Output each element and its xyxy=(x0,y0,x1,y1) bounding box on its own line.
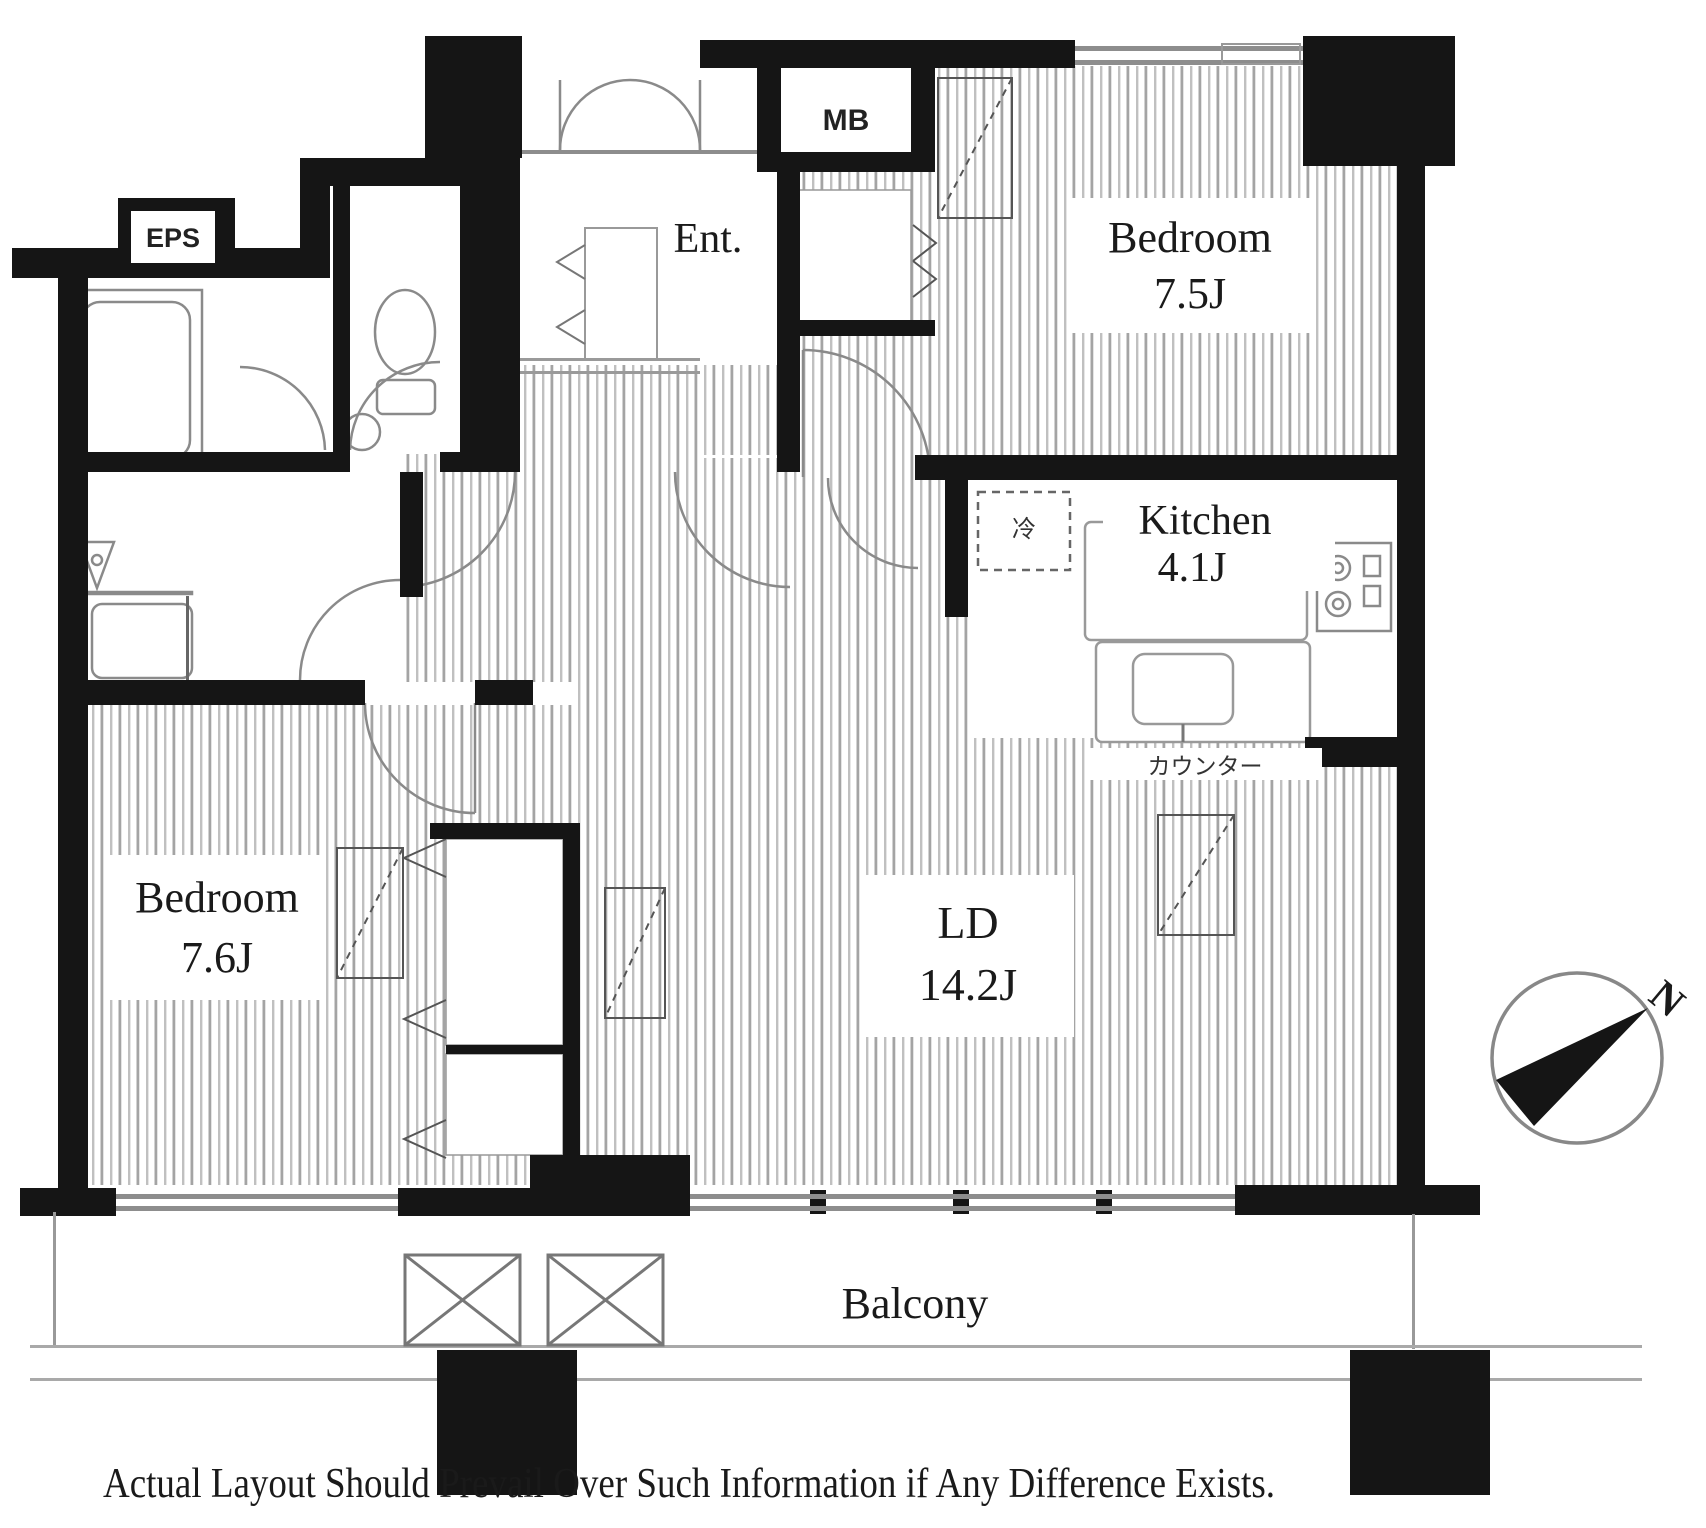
refrigerator-label: 冷 xyxy=(1012,516,1036,543)
bedroom-left-size: 7.6J xyxy=(181,933,253,982)
bedroom-top-name: Bedroom xyxy=(1108,213,1272,262)
balcony-label: Balcony xyxy=(842,1279,989,1328)
eps-label: EPS xyxy=(146,223,200,253)
kitchen-name: Kitchen xyxy=(1139,498,1272,544)
balcony-area xyxy=(30,1212,1642,1495)
floor-plan-drawing: 冷 xyxy=(0,0,1706,1528)
balcony-x-box xyxy=(405,1255,520,1345)
balcony-x-box xyxy=(548,1255,663,1345)
kitchen-size: 4.1J xyxy=(1158,545,1227,591)
ld-name: LD xyxy=(937,897,998,948)
compass: N xyxy=(1492,972,1693,1143)
bedroom-top-size: 7.5J xyxy=(1154,269,1226,318)
structural-pillar xyxy=(1350,1350,1490,1495)
entrance-label: Ent. xyxy=(674,216,743,262)
ld-size: 14.2J xyxy=(919,959,1017,1010)
bedroom-left-name: Bedroom xyxy=(135,873,299,922)
floor-plan-page: 冷 xyxy=(0,0,1706,1528)
disclaimer-text: Actual Layout Should Prevail Over Such I… xyxy=(103,1461,1275,1507)
bathtub xyxy=(70,290,202,470)
meter-box-label: MB xyxy=(823,104,870,137)
counter-label: カウンター xyxy=(1148,753,1263,779)
